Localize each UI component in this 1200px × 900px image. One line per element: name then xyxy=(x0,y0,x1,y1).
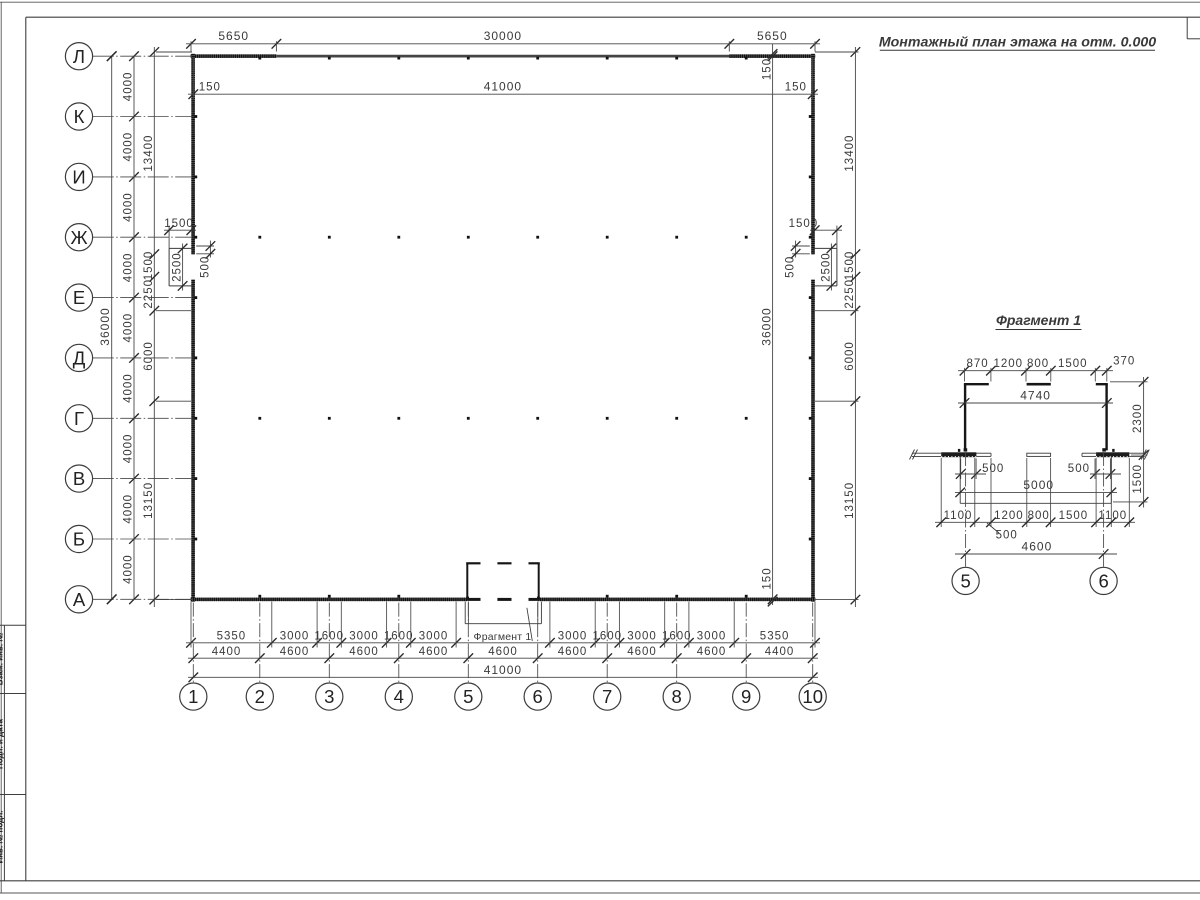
svg-text:2250: 2250 xyxy=(844,279,856,309)
svg-text:4000: 4000 xyxy=(122,373,134,403)
svg-text:4: 4 xyxy=(394,686,404,707)
svg-text:36000: 36000 xyxy=(98,307,112,345)
svg-text:1200: 1200 xyxy=(994,510,1024,522)
svg-text:13150: 13150 xyxy=(844,482,856,519)
svg-text:2500: 2500 xyxy=(821,252,833,282)
svg-text:150: 150 xyxy=(199,81,221,93)
svg-text:1500: 1500 xyxy=(844,251,856,281)
svg-text:5000: 5000 xyxy=(1023,478,1054,492)
svg-text:3000: 3000 xyxy=(419,630,449,642)
svg-text:Монтажный план этажа на отм. 0: Монтажный план этажа на отм. 0.000 xyxy=(879,35,1156,51)
svg-text:4000: 4000 xyxy=(122,494,134,524)
svg-text:1500: 1500 xyxy=(1132,464,1144,494)
svg-text:500: 500 xyxy=(996,530,1018,542)
svg-text:Д: Д xyxy=(73,348,86,369)
svg-text:6000: 6000 xyxy=(844,341,856,371)
svg-text:4400: 4400 xyxy=(212,646,242,658)
svg-text:41000: 41000 xyxy=(484,79,522,93)
svg-text:4600: 4600 xyxy=(419,646,449,658)
svg-text:41000: 41000 xyxy=(484,663,522,677)
svg-text:4000: 4000 xyxy=(122,72,134,102)
svg-text:10: 10 xyxy=(802,686,823,707)
svg-text:4000: 4000 xyxy=(122,554,134,584)
svg-text:Фрагмент 1: Фрагмент 1 xyxy=(474,631,532,643)
svg-text:150: 150 xyxy=(785,81,807,93)
svg-text:Взам. инв. №: Взам. инв. № xyxy=(0,633,4,686)
svg-text:5: 5 xyxy=(463,686,473,707)
svg-text:150: 150 xyxy=(762,567,774,589)
svg-text:5650: 5650 xyxy=(218,29,249,43)
svg-text:800: 800 xyxy=(1028,510,1050,522)
svg-text:3000: 3000 xyxy=(627,630,657,642)
svg-text:6: 6 xyxy=(533,686,543,707)
svg-text:3000: 3000 xyxy=(280,630,310,642)
svg-text:4000: 4000 xyxy=(122,192,134,222)
svg-text:500: 500 xyxy=(785,256,797,278)
svg-text:4000: 4000 xyxy=(122,313,134,343)
svg-text:5350: 5350 xyxy=(217,630,247,642)
svg-text:2300: 2300 xyxy=(1132,403,1144,433)
svg-text:1: 1 xyxy=(188,686,198,707)
svg-text:6: 6 xyxy=(1098,571,1108,592)
svg-text:6000: 6000 xyxy=(143,341,155,371)
svg-text:5350: 5350 xyxy=(760,630,790,642)
svg-text:Г: Г xyxy=(74,408,84,429)
svg-text:1200: 1200 xyxy=(994,358,1024,370)
svg-text:500: 500 xyxy=(982,463,1004,475)
svg-text:4600: 4600 xyxy=(627,646,657,658)
svg-text:2: 2 xyxy=(255,686,265,707)
svg-text:Подп. и дата: Подп. и дата xyxy=(0,718,4,768)
svg-text:800: 800 xyxy=(1027,358,1049,370)
svg-text:4740: 4740 xyxy=(1020,388,1051,402)
svg-text:4600: 4600 xyxy=(697,646,727,658)
svg-text:И: И xyxy=(72,167,85,188)
svg-text:1500: 1500 xyxy=(1058,358,1088,370)
svg-text:13400: 13400 xyxy=(844,135,856,172)
svg-text:А: А xyxy=(73,589,86,610)
svg-text:4000: 4000 xyxy=(122,253,134,283)
svg-text:2500: 2500 xyxy=(172,252,184,282)
svg-text:9: 9 xyxy=(741,686,751,707)
svg-text:Ж: Ж xyxy=(70,227,87,248)
svg-text:36000: 36000 xyxy=(760,307,774,345)
svg-text:13150: 13150 xyxy=(143,482,155,519)
svg-text:5: 5 xyxy=(960,571,970,592)
svg-text:К: К xyxy=(74,106,85,127)
svg-text:4000: 4000 xyxy=(122,434,134,464)
svg-text:1500: 1500 xyxy=(143,251,155,281)
svg-text:1500: 1500 xyxy=(1059,510,1089,522)
svg-text:Л: Л xyxy=(73,46,85,67)
svg-text:4600: 4600 xyxy=(349,646,379,658)
svg-text:4400: 4400 xyxy=(765,646,795,658)
svg-text:3: 3 xyxy=(324,686,334,707)
svg-text:Б: Б xyxy=(73,529,85,550)
svg-text:370: 370 xyxy=(1113,356,1135,368)
svg-text:1500: 1500 xyxy=(164,218,194,230)
svg-text:3000: 3000 xyxy=(697,630,727,642)
svg-text:500: 500 xyxy=(199,256,211,278)
svg-text:3000: 3000 xyxy=(349,630,379,642)
svg-text:1500: 1500 xyxy=(789,218,819,230)
svg-text:1100: 1100 xyxy=(944,510,973,522)
svg-text:4600: 4600 xyxy=(280,646,310,658)
svg-text:7: 7 xyxy=(602,686,612,707)
svg-text:3000: 3000 xyxy=(558,630,588,642)
svg-text:2250: 2250 xyxy=(143,279,155,309)
svg-text:1100: 1100 xyxy=(1098,510,1127,522)
svg-text:5650: 5650 xyxy=(757,29,788,43)
svg-text:870: 870 xyxy=(967,358,989,370)
svg-text:4600: 4600 xyxy=(1022,540,1053,554)
svg-text:В: В xyxy=(73,468,85,489)
svg-text:150: 150 xyxy=(762,58,774,80)
svg-text:4600: 4600 xyxy=(488,646,518,658)
svg-text:8: 8 xyxy=(672,686,682,707)
svg-text:Фрагмент 1: Фрагмент 1 xyxy=(996,312,1081,328)
svg-text:4600: 4600 xyxy=(558,646,588,658)
svg-text:Е: Е xyxy=(73,287,85,308)
svg-text:4000: 4000 xyxy=(122,132,134,162)
svg-text:Инв. № подл.: Инв. № подл. xyxy=(0,810,4,863)
svg-text:13400: 13400 xyxy=(143,135,155,172)
svg-text:500: 500 xyxy=(1068,463,1090,475)
svg-text:30000: 30000 xyxy=(484,29,522,43)
